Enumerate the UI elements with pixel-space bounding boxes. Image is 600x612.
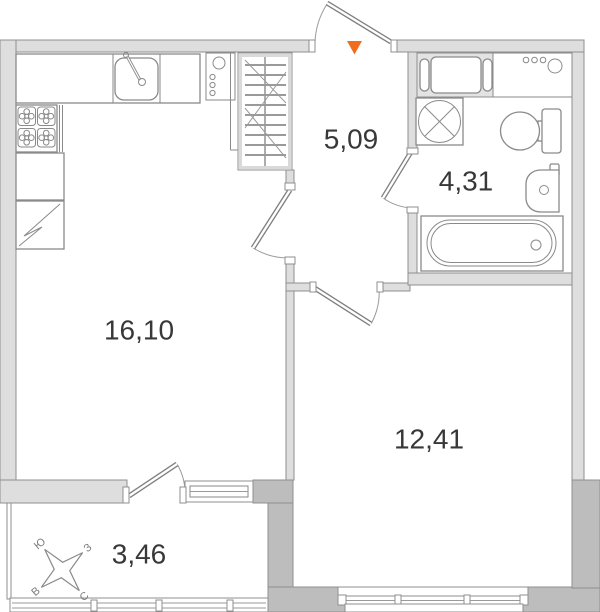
bathroom-cabinet-icon [417, 53, 493, 97]
bathroom-counter [493, 53, 572, 97]
living-room-window [338, 587, 528, 612]
wall-hall-bottom-right [379, 283, 410, 291]
balcony-door [123, 464, 186, 503]
balcony-glazing [10, 598, 268, 612]
kitchen-door [253, 183, 295, 264]
bathroom-door [383, 148, 418, 213]
wall-top-right [391, 40, 584, 52]
kitchen-area-label: 16,10 [104, 315, 174, 346]
kitchen-cabinet-icon [16, 153, 64, 200]
wall-bath-left-lower [408, 208, 417, 273]
toilet-icon [501, 109, 562, 153]
bathroom-sink-icon [526, 164, 559, 212]
room-area-label: 12,41 [394, 424, 464, 455]
washing-machine-icon [416, 98, 463, 145]
kitchen-counter [16, 54, 200, 103]
kitchen-window [185, 481, 253, 502]
wall-bath-bottom [408, 273, 572, 285]
balcony-area-label: 3,46 [112, 539, 167, 570]
kitchen-partition [231, 53, 239, 150]
compass-rose-icon: Ю З С В [7, 515, 117, 612]
hallway-area-label: 5,09 [324, 124, 379, 155]
floor-plan: Ю З С В 5,09 4,31 16,10 12,41 3,46 [0, 0, 600, 612]
kitchen-sink-icon [115, 53, 158, 101]
stove-icon [16, 105, 63, 152]
dark-wall-corner [253, 480, 293, 503]
refrigerator-icon [16, 201, 64, 249]
living-room-door [310, 282, 383, 324]
dark-wall-right [572, 480, 600, 588]
bathroom-area-label: 4,31 [439, 166, 494, 197]
dark-wall-balcony-right [268, 503, 293, 588]
compass-east-label: В [29, 585, 42, 599]
wall-right [572, 52, 584, 480]
wall-hall-bottom-left [286, 283, 313, 291]
wall-kitchen-south [0, 480, 127, 503]
wardrobe-icon [238, 53, 292, 170]
wall-top-left [0, 40, 315, 52]
wall-left [0, 40, 16, 503]
bathtub-icon [421, 216, 563, 271]
compass-west-label: З [82, 541, 95, 555]
pipe-risers-icon [523, 57, 529, 63]
entrance-arrow-icon [347, 41, 362, 55]
balcony-left-wall [7, 503, 11, 599]
